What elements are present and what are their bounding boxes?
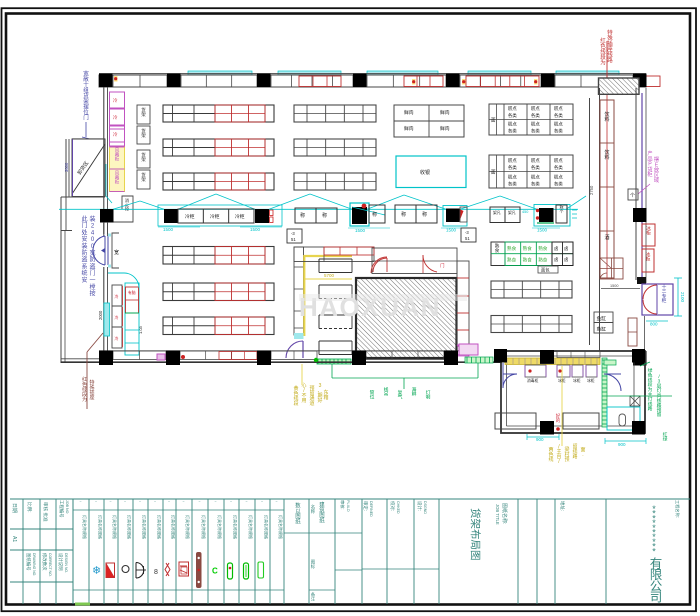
svg-text:料: 料 — [604, 154, 609, 161]
svg-text:门: 门 — [81, 222, 87, 230]
svg-text:纸: 纸 — [295, 518, 301, 526]
svg-text:段: 段 — [293, 400, 298, 407]
svg-text:~: ~ — [168, 500, 170, 504]
svg-text:审定:: 审定: — [362, 501, 369, 511]
svg-text:鱼缸: 鱼缸 — [597, 315, 607, 322]
svg-text:消毒柜: 消毒柜 — [527, 378, 539, 383]
svg-text:灯具名称规格: 灯具名称规格 — [248, 515, 254, 539]
svg-text:门: 门 — [83, 114, 89, 122]
svg-text:灯具名称规格: 灯具名称规格 — [127, 515, 133, 539]
svg-text:各类: 各类 — [531, 112, 540, 119]
svg-text:宽: 宽 — [114, 249, 119, 256]
svg-text:熟食: 熟食 — [523, 245, 533, 252]
svg-text:灯具名称规格: 灯具名称规格 — [112, 515, 118, 539]
svg-text:~: ~ — [261, 500, 263, 504]
svg-text:鲜肉: 鲜肉 — [404, 109, 414, 116]
svg-text:各类: 各类 — [554, 128, 563, 135]
svg-text:称: 称 — [401, 211, 406, 218]
svg-text:系: 系 — [81, 262, 87, 270]
svg-text:熟食: 熟食 — [538, 245, 548, 252]
svg-text:工程名称:: 工程名称: — [674, 500, 681, 518]
svg-text:冷柜: 冷柜 — [210, 213, 220, 220]
svg-text:线: 线 — [548, 456, 553, 463]
svg-text:❄: ❄ — [92, 565, 101, 577]
svg-text:个: 个 — [560, 209, 564, 214]
svg-text:1500: 1500 — [610, 284, 618, 288]
svg-text:酒: 酒 — [604, 234, 609, 241]
svg-text:~: ~ — [139, 500, 141, 504]
svg-text:的: 的 — [556, 417, 561, 424]
svg-text:位: 位 — [370, 394, 375, 401]
svg-text:统: 统 — [81, 269, 87, 277]
svg-text:道: 道 — [309, 400, 314, 407]
svg-text:各类: 各类 — [508, 112, 517, 119]
svg-text:冷: 冷 — [115, 293, 119, 299]
svg-text:~: ~ — [109, 500, 111, 504]
svg-text:按: 按 — [89, 290, 95, 298]
svg-text:称: 称 — [311, 508, 316, 515]
svg-text:冷: 冷 — [113, 131, 118, 138]
svg-text:灯具名称规格: 灯具名称规格 — [98, 515, 104, 539]
svg-text:糕点: 糕点 — [508, 174, 517, 181]
svg-text:糕点: 糕点 — [554, 105, 563, 112]
svg-text:3500: 3500 — [64, 162, 69, 172]
svg-text:A1: A1 — [11, 536, 17, 542]
svg-text:900: 900 — [536, 437, 544, 442]
svg-text:冰柜: 冰柜 — [573, 378, 581, 383]
svg-text:门: 门 — [440, 262, 445, 269]
svg-text:盗: 盗 — [89, 262, 95, 270]
svg-text:卤: 卤 — [564, 256, 569, 263]
svg-text:门: 门 — [89, 269, 95, 277]
svg-text:~: ~ — [275, 500, 277, 504]
svg-text:800: 800 — [650, 322, 658, 327]
svg-text:各类: 各类 — [554, 181, 563, 188]
svg-text:称: 称 — [300, 212, 305, 219]
svg-text:2750: 2750 — [589, 185, 594, 195]
svg-text:个: 个 — [630, 193, 635, 199]
svg-text:熟食: 熟食 — [523, 257, 533, 264]
svg-text:8: 8 — [154, 569, 158, 576]
svg-text:冷柜: 冷柜 — [185, 213, 195, 220]
svg-text:气: 气 — [398, 394, 403, 401]
svg-text:安: 安 — [81, 235, 87, 243]
svg-text:料: 料 — [604, 116, 609, 123]
svg-text:日期: 日期 — [11, 503, 17, 513]
svg-text:糕点: 糕点 — [554, 174, 563, 181]
svg-text:1500: 1500 — [163, 227, 174, 232]
svg-text:箱: 箱 — [323, 394, 328, 401]
svg-text:冷: 冷 — [115, 314, 119, 320]
svg-text:1500: 1500 — [250, 227, 261, 232]
svg-text:冷: 冷 — [113, 97, 118, 104]
svg-text:架凡: 架凡 — [493, 210, 501, 215]
svg-text:熟食: 熟食 — [507, 257, 517, 264]
svg-text:制: 制 — [426, 394, 431, 401]
svg-text:2000: 2000 — [98, 310, 103, 320]
svg-text:熟食: 熟食 — [538, 257, 548, 264]
svg-text:绿: 绿 — [663, 436, 668, 443]
svg-text:DRAWING NO.: DRAWING NO. — [32, 553, 36, 576]
svg-text:修改数次: 修改数次 — [41, 553, 48, 571]
svg-text:路: 路 — [648, 405, 653, 412]
svg-text:灯具名称规格: 灯具名称规格 — [142, 515, 148, 539]
svg-text:卤: 卤 — [554, 256, 559, 263]
svg-text:安: 安 — [81, 276, 87, 284]
svg-text:柜: 柜 — [115, 156, 120, 163]
svg-text:.: . — [582, 452, 583, 458]
svg-text:为: 为 — [600, 59, 606, 67]
svg-text:冷: 冷 — [113, 114, 118, 121]
svg-text:5700: 5700 — [324, 273, 335, 278]
svg-text:熟食: 熟食 — [507, 245, 517, 252]
svg-text:处: 处 — [81, 228, 87, 236]
svg-text:审核:: 审核: — [339, 500, 346, 510]
svg-text:51: 51 — [291, 237, 296, 242]
svg-text:图纸名称:: 图纸名称: — [501, 503, 508, 524]
svg-text:柜: 柜 — [646, 230, 651, 237]
svg-text:留: 留 — [657, 411, 662, 418]
svg-text:称: 称 — [322, 212, 327, 219]
svg-text:路: 路 — [607, 56, 613, 64]
svg-text:路: 路 — [572, 453, 577, 460]
svg-text:糕点: 糕点 — [531, 157, 540, 164]
svg-text:域: 域 — [654, 176, 659, 184]
svg-text:PLIILD: PLIILD — [346, 500, 350, 512]
svg-text:称: 称 — [372, 211, 377, 218]
svg-text:鲜: 鲜 — [412, 391, 417, 398]
svg-text:樘: 樘 — [89, 283, 95, 291]
svg-text:灯具名称规格: 灯具名称规格 — [217, 515, 223, 539]
svg-text:司: 司 — [650, 591, 663, 605]
svg-text:各类: 各类 — [554, 164, 563, 171]
svg-text:~: ~ — [198, 500, 200, 504]
svg-text:图纸编号: 图纸编号 — [25, 553, 32, 571]
svg-text:CHKED: CHKED — [396, 501, 400, 514]
svg-text:柜: 柜 — [115, 179, 120, 186]
svg-text:~: ~ — [79, 500, 81, 504]
svg-text:1.03: 1.03 — [138, 325, 143, 334]
svg-text:糕点: 糕点 — [531, 121, 540, 128]
svg-text:柜: 柜 — [646, 256, 651, 263]
svg-text:灯具名称规格: 灯具名称规格 — [233, 515, 239, 539]
svg-text:灯具名称规格: 灯具名称规格 — [185, 515, 191, 539]
svg-text:~: ~ — [154, 500, 156, 504]
svg-text:鱼缸: 鱼缸 — [597, 326, 607, 333]
svg-text:货架布局图: 货架布局图 — [469, 508, 482, 561]
svg-text:900: 900 — [618, 442, 626, 447]
svg-text:卤: 卤 — [564, 245, 569, 252]
svg-text:灯具名称规格: 灯具名称规格 — [201, 515, 207, 539]
svg-text:鲜肉: 鲜肉 — [404, 125, 414, 132]
svg-text:校对:: 校对: — [389, 501, 396, 511]
svg-text:架凡: 架凡 — [508, 210, 516, 215]
svg-text:糕点: 糕点 — [531, 174, 540, 181]
svg-text:450: 450 — [522, 210, 528, 214]
svg-text:糕点: 糕点 — [554, 121, 563, 128]
svg-text:标: 标 — [311, 563, 316, 570]
svg-text:吊: 吊 — [384, 392, 389, 398]
svg-text:一: 一 — [89, 278, 95, 284]
svg-text:1500: 1500 — [355, 228, 366, 233]
svg-text:面包: 面包 — [541, 267, 550, 274]
svg-text:~: ~ — [124, 500, 126, 504]
svg-text:糕点: 糕点 — [554, 157, 563, 164]
svg-text:C: C — [212, 567, 218, 576]
svg-text:糕点: 糕点 — [508, 121, 517, 128]
svg-text:2100: 2100 — [680, 292, 685, 303]
svg-text:51: 51 — [465, 236, 470, 241]
svg-text:灯具名称规格: 灯具名称规格 — [157, 515, 163, 539]
svg-text:食: 食 — [495, 247, 500, 254]
svg-text:DESIGN NO.: DESIGN NO. — [64, 553, 68, 573]
svg-text:用: 用 — [301, 398, 306, 404]
svg-text:冰柜: 冰柜 — [587, 378, 595, 383]
svg-text:DEFINED: DEFINED — [369, 501, 373, 517]
svg-text:有脑: 有脑 — [128, 290, 136, 295]
svg-text:座: 座 — [89, 394, 94, 401]
svg-text:此: 此 — [81, 215, 87, 223]
svg-text:~: ~ — [230, 500, 232, 504]
svg-text:JOB NO: JOB NO — [65, 500, 69, 514]
svg-text:糕点: 糕点 — [531, 105, 540, 112]
svg-text:柜: 柜 — [662, 297, 667, 304]
svg-text:JOB TITLE: JOB TITLE — [495, 504, 500, 525]
svg-text:工程编号: 工程编号 — [58, 500, 65, 518]
svg-text:糕点: 糕点 — [508, 105, 517, 112]
svg-text:DSGND: DSGND — [423, 501, 427, 514]
svg-text:好: 好 — [317, 397, 322, 404]
svg-text:地址:: 地址: — [560, 501, 566, 511]
svg-text:冷柜: 冷柜 — [235, 213, 245, 220]
svg-text:各类: 各类 — [531, 164, 540, 171]
svg-text:装: 装 — [81, 242, 87, 250]
svg-text:防: 防 — [81, 249, 87, 257]
svg-text:收银: 收银 — [420, 169, 430, 176]
svg-text:~: ~ — [95, 500, 97, 504]
svg-text:设计:: 设计: — [416, 501, 423, 511]
svg-text:审核 批准: 审核 批准 — [42, 502, 49, 522]
svg-text:各类: 各类 — [508, 164, 517, 171]
svg-text:各类: 各类 — [508, 181, 517, 188]
svg-text:为: 为 — [82, 396, 87, 403]
svg-text:糕点: 糕点 — [508, 157, 517, 164]
svg-text:称: 称 — [422, 211, 427, 218]
svg-text:设计说明: 设计说明 — [57, 553, 64, 571]
svg-text:~: ~ — [245, 500, 247, 504]
svg-text:纸: 纸 — [319, 517, 325, 525]
svg-text:灯具名称规格: 灯具名称规格 — [171, 515, 177, 539]
svg-text:鲜肉: 鲜肉 — [440, 125, 450, 132]
svg-text:各类: 各类 — [531, 128, 540, 135]
svg-text:比例:: 比例: — [26, 502, 33, 512]
svg-text:灯具名称规格: 灯具名称规格 — [264, 515, 270, 539]
svg-text:冷: 冷 — [115, 335, 119, 341]
svg-text:盗: 盗 — [81, 256, 87, 264]
svg-text:各类: 各类 — [531, 181, 540, 188]
svg-text:各类: 各类 — [508, 128, 517, 135]
svg-text:鲜肉: 鲜肉 — [440, 109, 450, 116]
svg-text:*: * — [652, 546, 656, 556]
svg-text:~: ~ — [182, 500, 184, 504]
svg-text:灯具名称规格: 灯具名称规格 — [278, 515, 284, 539]
svg-text:柜: 柜 — [647, 170, 652, 178]
svg-text:各类: 各类 — [554, 112, 563, 119]
svg-text:CORRECT NO.: CORRECT NO. — [48, 553, 52, 577]
svg-text:卤: 卤 — [554, 245, 559, 252]
svg-text:~: ~ — [214, 500, 216, 504]
svg-text:灯具名称规格: 灯具名称规格 — [82, 515, 88, 539]
svg-text:装: 装 — [89, 215, 95, 223]
svg-text:预: 预 — [564, 456, 569, 463]
